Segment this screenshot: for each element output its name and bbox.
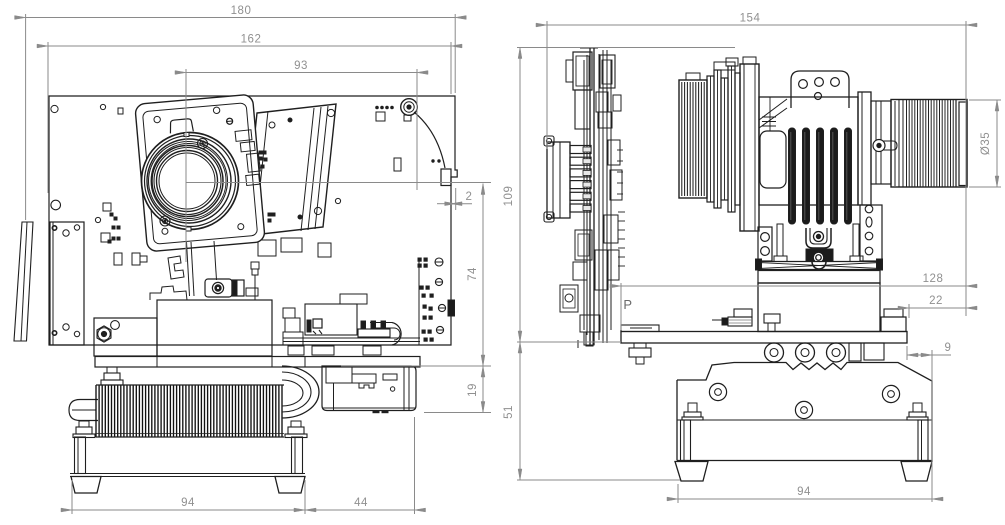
svg-text:2: 2	[466, 191, 473, 203]
svg-text:154: 154	[740, 13, 761, 25]
svg-text:180: 180	[231, 5, 252, 17]
svg-text:93: 93	[294, 60, 308, 72]
svg-text:19: 19	[467, 383, 479, 397]
svg-text:44: 44	[354, 497, 368, 509]
svg-text:74: 74	[467, 267, 479, 281]
svg-text:22: 22	[929, 295, 943, 307]
svg-text:94: 94	[181, 497, 195, 509]
svg-text:162: 162	[241, 34, 262, 46]
svg-text:94: 94	[797, 486, 811, 498]
svg-text:9: 9	[945, 342, 952, 354]
svg-text:51: 51	[503, 405, 515, 419]
svg-text:Ø35: Ø35	[980, 132, 992, 155]
svg-text:109: 109	[503, 186, 515, 207]
svg-text:P: P	[623, 297, 632, 312]
svg-text:128: 128	[923, 273, 944, 285]
